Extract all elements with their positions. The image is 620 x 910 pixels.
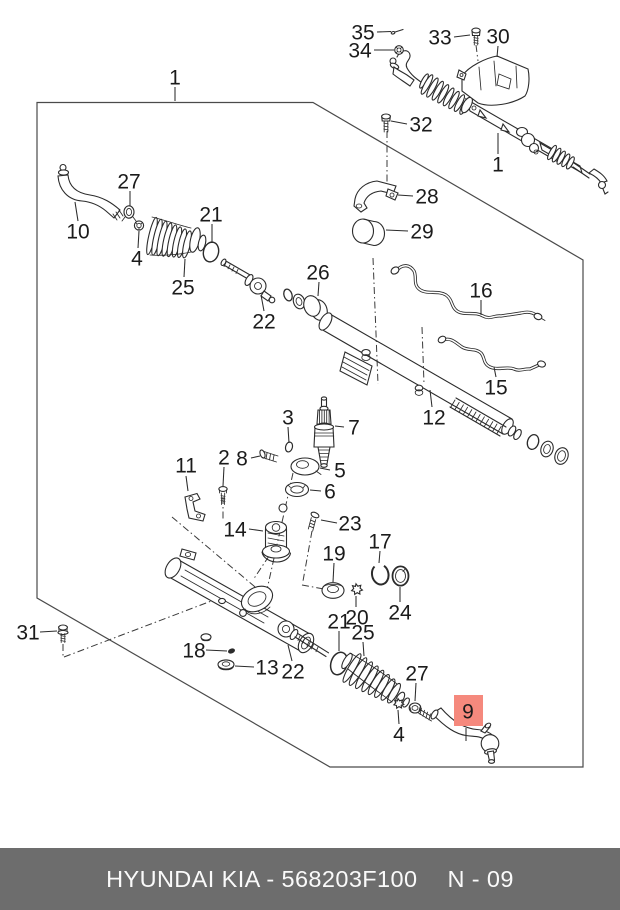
part-15-return-pipe-drawing [437,335,546,370]
part-label-8: 8 [236,448,248,471]
leader-line-28 [398,195,413,196]
part-13-cap-drawing [218,660,234,670]
part-label-11: 11 [175,455,197,478]
diagram-frame-outline [37,103,583,768]
part-label-21-left: 21 [199,204,222,227]
caption-page-ref: N - 09 [447,866,513,893]
part-28-mounting-bracket-drawing [354,181,398,212]
part-24-retainer-ring-drawing [393,566,409,585]
part-label-27-right: 27 [405,663,428,686]
part-label-30: 30 [486,26,509,49]
leader-line-19 [333,563,334,582]
leader-line-11 [186,476,188,491]
part-label-18: 18 [182,640,205,663]
part-label-14: 14 [223,519,247,542]
part-34-nut-drawing [395,46,404,55]
part-8-bolt-drawing [259,449,278,462]
part-label-24: 24 [388,602,412,625]
part-label-28: 28 [415,186,438,209]
part-label-23: 23 [338,513,361,536]
leader-line-23 [321,520,337,523]
leader-line-6 [310,490,321,491]
part-label-22-left: 22 [252,311,275,334]
part-label-33: 33 [428,27,451,50]
leader-line-27-right [415,683,416,701]
part-label-21-right: 21 [327,611,350,634]
part-5-dust-cover-drawing [291,458,321,475]
part-16-feed-pipe-drawing [390,265,545,320]
part-27-nut-right-drawing [409,703,421,713]
leader-line-4-right [398,710,399,724]
part-29-bushing-drawing [353,219,385,246]
part-33-bolt-drawing [472,28,480,45]
part-3-washer-rings-drawing [282,288,306,310]
part-label-27-left: 27 [117,171,140,194]
part-label-13: 13 [255,657,278,680]
leader-line-25-left [184,259,185,277]
part-14-yoke-assembly-drawing [262,522,291,563]
part-label-16: 16 [469,280,492,303]
leader-line-31 [40,631,57,632]
leader-line-35 [377,32,391,33]
part-label-34: 34 [348,40,372,63]
part-label-32: 32 [409,114,432,137]
part-3-o-ring-drawing [284,441,293,452]
part-label-25-right: 25 [351,622,374,645]
part-18-grease-drawing [227,648,235,655]
exploded-parts-diagram: 1353433303212829271042125222616151237285… [0,0,620,848]
caption-bar: HYUNDAI KIA - 568203F100 N - 09 [0,848,620,910]
caption-brand-and-part-number: HYUNDAI KIA - 568203F100 [106,866,417,893]
part-27-clamp-left-drawing [122,206,136,221]
part-label-22-right: 22 [281,661,304,684]
part-19-plug-drawing [322,583,344,599]
part-label-3: 3 [282,407,294,430]
part-4-nut-left-drawing [134,221,143,230]
part-label-25-left: 25 [171,277,194,300]
part-label-12: 12 [422,407,445,430]
part-17-snap-ring-drawing [372,566,389,585]
alignment-dash-lines [63,45,478,657]
part-31-bolt-drawing [58,625,68,643]
part-20-lock-washer-drawing [352,584,363,595]
leader-line-22-right [288,645,292,661]
part-label-10: 10 [66,221,89,244]
part-35-pin-drawing [391,30,403,35]
part-label-19: 19 [322,543,345,566]
leader-line-5 [320,468,330,470]
leader-line-14 [249,529,263,531]
part-label-9: 9 [462,701,474,724]
part-label-4-right: 4 [393,724,405,747]
part-25-bellows-right-drawing [340,652,411,708]
part-22-inner-tie-rod-left-drawing [220,258,275,303]
part-label-6: 6 [324,481,336,504]
part-4-lock-washer-right-drawing [394,699,404,709]
leader-line-4-left [138,231,139,248]
leader-line-33 [454,35,470,37]
leader-line-13 [235,666,254,667]
leader-line-18 [206,650,227,651]
part-10-tie-rod-end-drawing [58,165,123,221]
part-7-pinion-valve-assembly-drawing [314,397,334,467]
leader-line-32 [391,121,407,124]
part-label-1-box: 1 [169,67,181,90]
part-25-bellows-left-drawing [145,217,208,259]
part-12-rack-and-housing-tube-drawing [316,311,570,466]
part-label-31: 31 [16,622,39,645]
part-ball-bearing-drawing [279,504,287,512]
part-32-bolt-drawing [382,114,391,132]
part-label-5: 5 [334,460,346,483]
leader-line-29 [386,230,408,231]
leader-line-2 [223,467,224,486]
part-23-bolt-drawing [308,511,320,531]
leader-line-8 [251,456,260,458]
part-label-7: 7 [348,417,360,440]
part-label-26: 26 [306,262,329,285]
leader-line-10 [75,202,78,221]
part-label-15: 15 [484,377,507,400]
leader-line-7 [335,426,344,427]
part-label-29: 29 [410,221,433,244]
part-6-seal-ring-drawing [286,483,309,497]
part-11-bracket-drawing [185,494,205,522]
part-label-17: 17 [368,531,391,554]
parts-catalog-page: 1353433303212829271042125222616151237285… [0,0,620,910]
part-label-1-assembly: 1 [492,154,504,177]
part-number-callouts: 1353433303212829271042125222616151237285… [16,22,509,747]
part-label-2: 2 [218,447,230,470]
part-label-4-left: 4 [131,248,143,271]
